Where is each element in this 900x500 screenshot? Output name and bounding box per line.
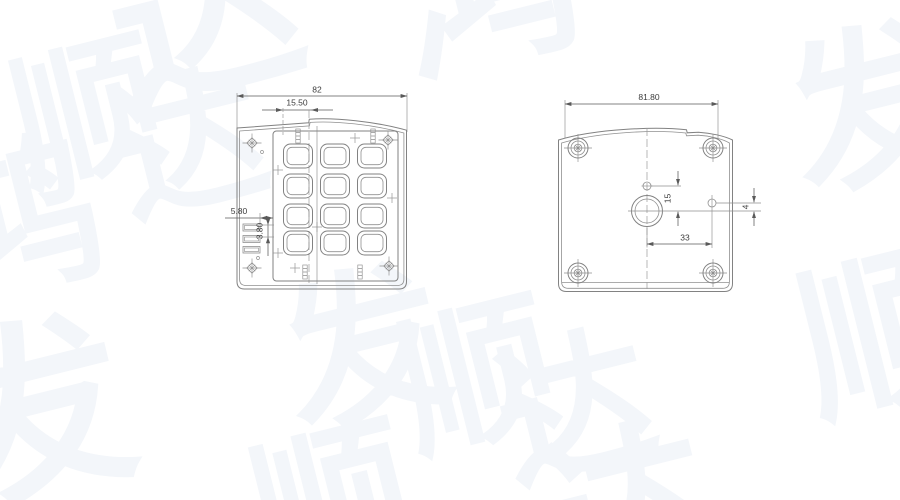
watermark-char: 鸿 xyxy=(0,122,118,322)
dim-label-4: 4 xyxy=(741,204,751,209)
dim-label-82: 82 xyxy=(312,85,322,95)
dim-slot-width: 5.80 xyxy=(225,206,273,224)
drawing-canvas: 达 鸿 顺 达 鸿 发 发 顺 达 顺 达 发 顺 xyxy=(0,0,900,500)
dim-label-5-80: 5.80 xyxy=(231,206,248,216)
pin-hole xyxy=(261,151,264,154)
watermark-char: 顺 xyxy=(782,232,900,438)
dim-label-15: 15 xyxy=(663,194,673,204)
cover-outline xyxy=(559,128,733,291)
dim-key-offset: 15.50 xyxy=(262,98,333,136)
watermark-char: 顺 xyxy=(235,408,429,500)
watermark-char: 顺 xyxy=(384,284,572,472)
dim-overall-width: 81.80 xyxy=(565,92,718,138)
dim-label-15-50: 15.50 xyxy=(286,98,308,108)
watermark-char: 顺 xyxy=(0,24,178,206)
back-cover-view-drawing: 81.80 15 33 xyxy=(548,86,778,314)
dim-label-81-80: 81.80 xyxy=(638,92,660,102)
dim-label-3-80: 3.80 xyxy=(255,222,265,239)
watermark-char: 达 xyxy=(482,316,670,500)
cover-inner-wall xyxy=(562,132,730,289)
watermark-char: 达 xyxy=(527,407,727,500)
watermark-char: 发 xyxy=(0,300,150,500)
dim-label-33: 33 xyxy=(680,233,690,243)
dim-hole-offset: 4 xyxy=(716,188,761,226)
pin-hole xyxy=(257,257,260,260)
keypad-front-view-drawing: 82 15.50 xyxy=(225,80,425,310)
keypad-panel xyxy=(273,131,398,281)
dim-slot-pitch: 3.80 xyxy=(255,218,275,256)
watermark-char: 发 xyxy=(770,7,900,213)
dim-hole-horizontal: 33 xyxy=(647,228,712,248)
